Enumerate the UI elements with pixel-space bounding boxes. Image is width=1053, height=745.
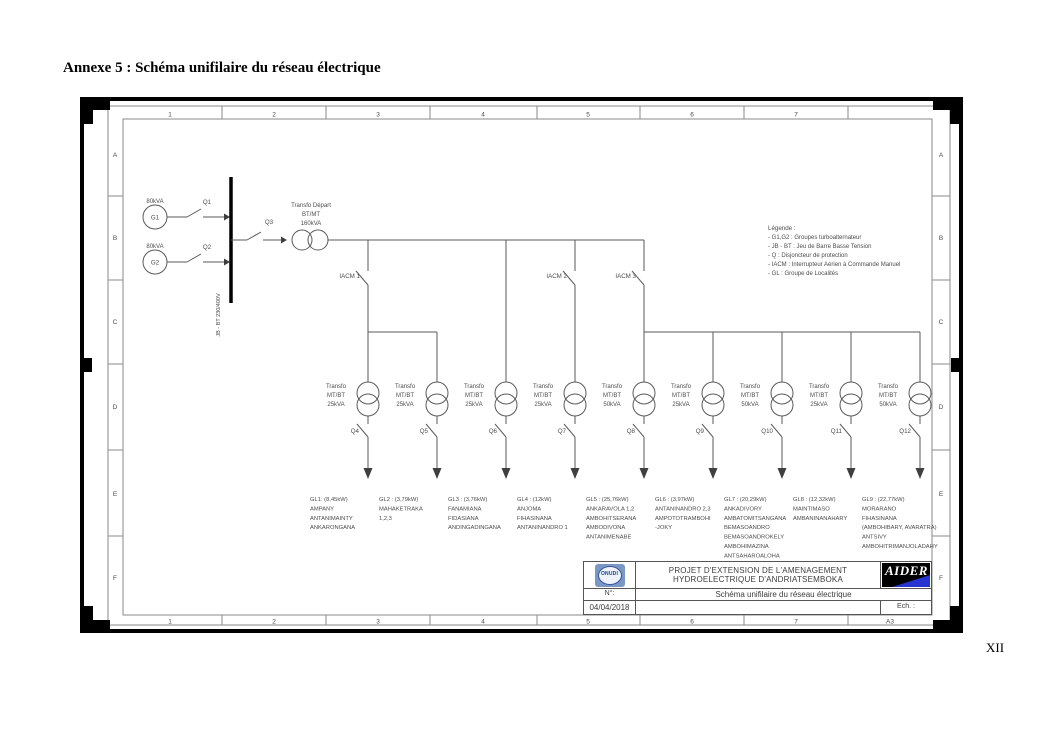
transformer-symbol — [495, 382, 517, 404]
breaker-label: Q5 — [420, 428, 429, 435]
aider-logo-text: AIDER — [885, 563, 928, 579]
legend-title: Légende : — [768, 225, 796, 232]
aider-logo-cell: AIDER — [881, 562, 931, 589]
legend-item: - G1,G2 : Groupes turboalternateur — [768, 235, 861, 241]
transformer-symbol — [357, 382, 379, 404]
transformer-label: MT/BT — [672, 393, 690, 399]
transformer-symbol — [633, 394, 655, 416]
transformer-label: Transfo — [533, 384, 554, 390]
feeder-arrow — [364, 468, 373, 479]
gl-label: FANAMIANA — [448, 506, 482, 512]
gl-label: MAHAKETRAKA — [379, 506, 423, 512]
breaker-label: Q11 — [831, 428, 843, 435]
ruler-row-label: B — [113, 235, 117, 242]
transformer-symbol — [840, 382, 862, 404]
transformer-label: 25kVA — [534, 402, 551, 408]
ruler-row-label: F — [939, 575, 943, 582]
drawing-sheet: 11223344556677A3AABBCCDDEEFFLégende :- G… — [80, 97, 963, 633]
switch-blade — [247, 232, 261, 240]
project-title-line1: PROJET D'EXTENSION DE L'AMENAGEMENT — [669, 566, 847, 575]
gl-label: ANTANIMENABE — [586, 535, 631, 541]
ruler-column-label: 2 — [272, 619, 276, 626]
transformer-symbol — [564, 394, 586, 416]
ruler-column-label: 5 — [586, 619, 590, 626]
ruler-row-label: A — [939, 152, 944, 159]
transformer-label: 25kVA — [327, 402, 344, 408]
empty-cell — [636, 601, 881, 614]
ruler-row-label: C — [939, 319, 944, 326]
transformer-label: Transfo — [395, 384, 416, 390]
ruler-column-label: 4 — [481, 619, 485, 626]
gl-label: ANKADIVORY — [724, 506, 762, 512]
busbar-label: JB - BT 230/400V — [216, 293, 222, 337]
breaker-label: Q6 — [489, 428, 498, 435]
gl-label: MAINTIMASO — [793, 506, 830, 512]
transformer-symbol — [426, 394, 448, 416]
gl-label: GL2 : (3,79kW) — [379, 497, 418, 503]
ruler-column-label: 6 — [690, 619, 694, 626]
gl-label: GL8 : (12,32kW) — [793, 497, 836, 503]
ruler-column-label: 4 — [481, 112, 485, 119]
generator-rating: 80kVA — [146, 244, 163, 250]
feeder-arrow — [571, 468, 580, 479]
gl-label: ANTANINANDRO 1 — [517, 525, 568, 531]
ruler-column-label: 2 — [272, 112, 276, 119]
feeder-switch-label: IACM 2 — [546, 273, 567, 280]
switch-blade — [187, 254, 201, 262]
gl-label: AMBATOMITSANGANA — [724, 516, 786, 522]
feeder-arrow — [778, 468, 787, 479]
gl-label: AMBOHITRIMANJOLADAHY — [862, 544, 938, 550]
transformer-label: 25kVA — [672, 402, 689, 408]
gl-label: AMBANINANAHARY — [793, 516, 847, 522]
gl-label: GL5 : (25,76kW) — [586, 497, 629, 503]
transformer-symbol — [564, 382, 586, 404]
scale-label: Ech. : — [881, 601, 931, 614]
transformer-symbol — [909, 382, 931, 404]
breaker-label: Q4 — [351, 428, 360, 435]
breaker-label: Q12 — [899, 428, 911, 435]
ruler-row-label: B — [939, 235, 943, 242]
departure-transformer-label: 160kVA — [301, 221, 322, 227]
center-mark — [951, 358, 963, 372]
ruler-row-label: A — [113, 152, 118, 159]
onudi-logo: ONUDI — [595, 564, 625, 587]
transformer-symbol — [702, 382, 724, 404]
transformer-label: MT/BT — [327, 393, 345, 399]
legend-item: - IACM : Interrupteur Aérien à Commande … — [768, 262, 900, 268]
breaker-label: Q1 — [203, 199, 212, 206]
transformer-label: Transfo — [740, 384, 761, 390]
gl-label: ANKARAVOLA 1,2 — [586, 506, 634, 512]
transformer-label: Transfo — [464, 384, 485, 390]
generator-name: G1 — [151, 215, 160, 222]
transformer-symbol — [633, 382, 655, 404]
gl-label: AMPOTOTRAMBOHI — [655, 516, 711, 522]
gl-label: GL4 : (12kW) — [517, 497, 552, 503]
drawing-frame — [123, 119, 932, 615]
gl-label: GL1: (8,45kW) — [310, 497, 348, 503]
gl-label: GL7 : (20,29kW) — [724, 497, 767, 503]
corner-mark — [80, 606, 110, 633]
transformer-symbol — [771, 382, 793, 404]
gl-label: ANTANIMAINTY — [310, 516, 353, 522]
gl-label: FIHASINANA — [517, 516, 552, 522]
legend-item: - Q : Disjoncteur de protection — [768, 253, 848, 259]
ruler-column-label: 5 — [586, 112, 590, 119]
transformer-symbol — [426, 382, 448, 404]
connector-arrow — [281, 237, 287, 244]
gl-label: GL9 : (22,77kW) — [862, 497, 905, 503]
feeder-arrow — [847, 468, 856, 479]
gl-label: GL3 : (3,76kW) — [448, 497, 487, 503]
legend-item: - GL : Groupe de Localités — [768, 271, 838, 277]
transformer-symbol — [357, 394, 379, 416]
gl-label: AMBOHITSERANA — [586, 516, 636, 522]
transformer-symbol — [771, 394, 793, 416]
breaker-label: Q8 — [627, 428, 636, 435]
gl-label: GL6 : (3,97kW) — [655, 497, 694, 503]
transformer-label: 25kVA — [465, 402, 482, 408]
title-block: ONUDI PROJET D'EXTENSION DE L'AMENAGEMEN… — [583, 561, 932, 615]
transformer-symbol — [702, 394, 724, 416]
transformer-label: Transfo — [878, 384, 899, 390]
departure-transformer-label: Transfo Départ — [291, 203, 331, 209]
gl-label: AMBOHIMAZINA — [724, 544, 769, 550]
transformer-label: 25kVA — [810, 402, 827, 408]
breaker-label: Q10 — [761, 428, 773, 435]
ruler-column-label: 1 — [168, 619, 172, 626]
connector-arrow — [224, 214, 230, 221]
annex-title: Annexe 5 : Schéma unifilaire du réseau é… — [63, 60, 381, 77]
ruler-row-label: F — [113, 575, 117, 582]
transformer-label: MT/BT — [465, 393, 483, 399]
generator-rating: 80kVA — [146, 199, 163, 205]
ruler-column-label: 3 — [376, 112, 380, 119]
feeder-arrow — [502, 468, 511, 479]
switch-blade — [187, 209, 201, 217]
transformer-label: 50kVA — [603, 402, 620, 408]
transformer-label: MT/BT — [810, 393, 828, 399]
departure-transformer-symbol — [308, 230, 328, 250]
ruler-row-label: E — [113, 491, 118, 498]
feeder-arrow — [433, 468, 442, 479]
transformer-label: MT/BT — [741, 393, 759, 399]
corner-mark — [933, 97, 963, 124]
ruler-column-label: 6 — [690, 112, 694, 119]
onudi-logo-text: ONUDI — [598, 566, 622, 585]
ruler-column-label: 7 — [794, 619, 798, 626]
gl-label: ANJOMA — [517, 506, 541, 512]
transformer-symbol — [495, 394, 517, 416]
gl-label: AMPANY — [310, 506, 334, 512]
gl-label: ANTSAHAROALOHA — [724, 553, 780, 559]
transformer-label: MT/BT — [396, 393, 414, 399]
ruler-row-label: D — [939, 404, 944, 411]
transformer-symbol — [909, 394, 931, 416]
corner-mark — [933, 606, 963, 633]
breaker-label: Q3 — [265, 219, 274, 226]
ruler-column-label: 1 — [168, 112, 172, 119]
transformer-label: Transfo — [326, 384, 347, 390]
connector-arrow — [224, 259, 230, 266]
transformer-label: Transfo — [671, 384, 692, 390]
number-label: N°: — [584, 589, 636, 601]
ruler-row-label: C — [113, 319, 118, 326]
feeder-switch-label: IACM 3 — [615, 273, 636, 280]
gl-label: MORARANO — [862, 506, 897, 512]
ruler-row-label: E — [939, 491, 944, 498]
document-page: { "page": { "annex_title": "Annexe 5 : S… — [0, 0, 1053, 745]
transformer-symbol — [840, 394, 862, 416]
ruler-column-label: 3 — [376, 619, 380, 626]
feeder-arrow — [709, 468, 718, 479]
gl-label: ANKARONGANA — [310, 525, 355, 531]
ruler-row-label: D — [113, 404, 118, 411]
gl-label: -JOKY — [655, 525, 672, 531]
transformer-label: 50kVA — [879, 402, 896, 408]
transformer-label: 25kVA — [396, 402, 413, 408]
breaker-label: Q9 — [696, 428, 705, 435]
departure-transformer-symbol — [292, 230, 312, 250]
project-title-line2: HYDROELECTRIQUE D'ANDRIATSEMBOKA — [673, 575, 843, 584]
transformer-label: Transfo — [602, 384, 623, 390]
drawing-date: 04/04/2018 — [584, 601, 636, 614]
gl-label: ANTSIVY — [862, 535, 887, 541]
gl-label: BEMASOANDRO — [724, 525, 770, 531]
transformer-label: 50kVA — [741, 402, 758, 408]
transformer-label: Transfo — [809, 384, 830, 390]
transformer-label: MT/BT — [879, 393, 897, 399]
generator-name: G2 — [151, 260, 160, 267]
transformer-label: MT/BT — [534, 393, 552, 399]
aider-logo: AIDER — [882, 563, 930, 587]
ruler-band — [108, 106, 950, 625]
legend-item: - JB - BT : Jeu de Barre Basse Tension — [768, 244, 872, 250]
center-mark — [80, 358, 92, 372]
gl-label: AMBODIVONA — [586, 525, 625, 531]
title-block-logo-cell: ONUDI — [584, 562, 636, 589]
gl-label: FIHASINANA — [862, 516, 897, 522]
ruler-column-label: 7 — [794, 112, 798, 119]
gl-label: ANDINGADINGANA — [448, 525, 501, 531]
page-number: XII — [986, 640, 1004, 656]
feeder-arrow — [640, 468, 649, 479]
project-title-cell: PROJET D'EXTENSION DE L'AMENAGEMENT HYDR… — [636, 562, 881, 589]
breaker-label: Q7 — [558, 428, 567, 435]
gl-label: ANTANINANDRO 2,3 — [655, 506, 711, 512]
drawing-title: Schéma unifilaire du réseau électrique — [636, 589, 931, 601]
gl-label: FIDASIANA — [448, 516, 479, 522]
feeder-arrow — [916, 468, 925, 479]
sheet-format-label: A3 — [886, 619, 894, 626]
single-line-diagram: 11223344556677A3AABBCCDDEEFFLégende :- G… — [80, 97, 963, 633]
feeder-switch-label: IACM 1 — [339, 273, 360, 280]
gl-label: (AMBOHIBARY, AVARATRA) — [862, 525, 937, 531]
corner-mark — [80, 97, 110, 124]
departure-transformer-label: BT/MT — [302, 212, 320, 218]
transformer-label: MT/BT — [603, 393, 621, 399]
breaker-label: Q2 — [203, 244, 212, 251]
gl-label: BEMASOANDROKELY — [724, 535, 784, 541]
gl-label: 1,2,3 — [379, 516, 392, 522]
sheet-border — [82, 99, 961, 631]
